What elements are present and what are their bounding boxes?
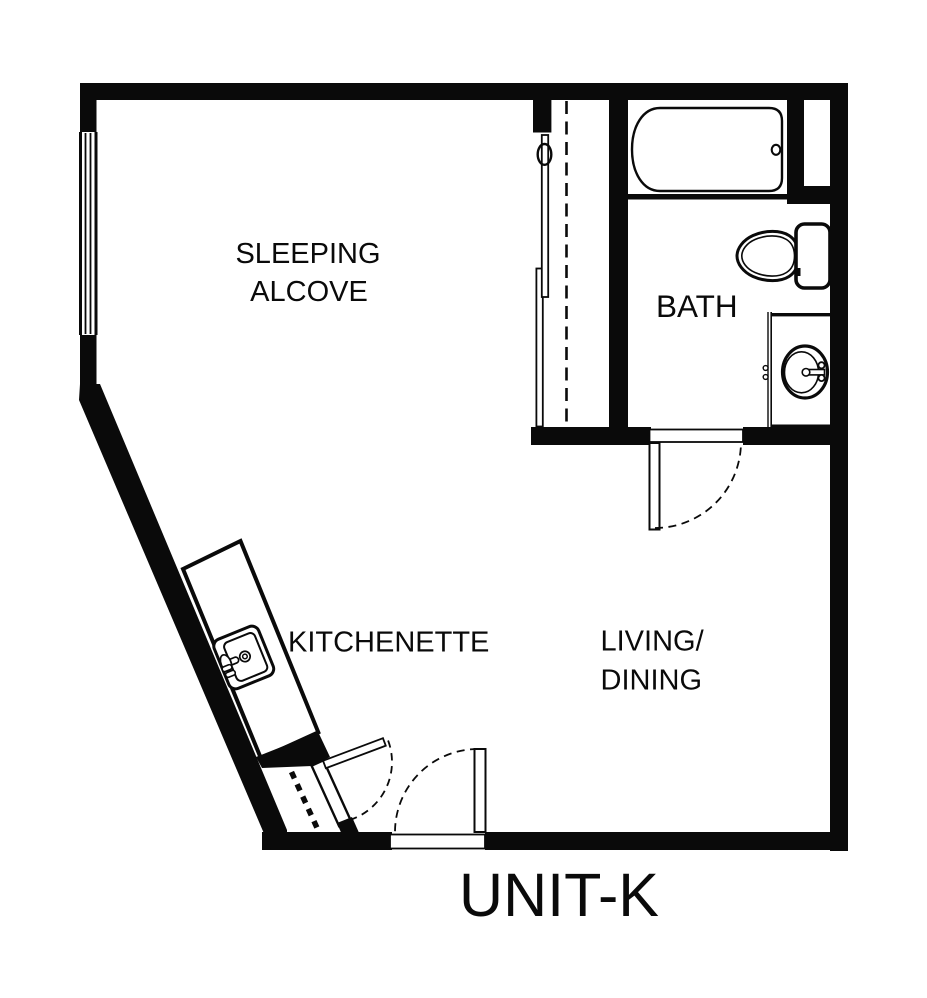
svg-text:LIVING/: LIVING/	[601, 626, 705, 658]
svg-text:ALCOVE: ALCOVE	[250, 276, 368, 308]
svg-text:UNIT-K: UNIT-K	[459, 861, 659, 929]
svg-text:BATH: BATH	[656, 288, 738, 324]
svg-text:KITCHENETTE: KITCHENETTE	[288, 627, 489, 659]
svg-text:SLEEPING: SLEEPING	[235, 238, 380, 270]
svg-text:DINING: DINING	[601, 665, 703, 697]
